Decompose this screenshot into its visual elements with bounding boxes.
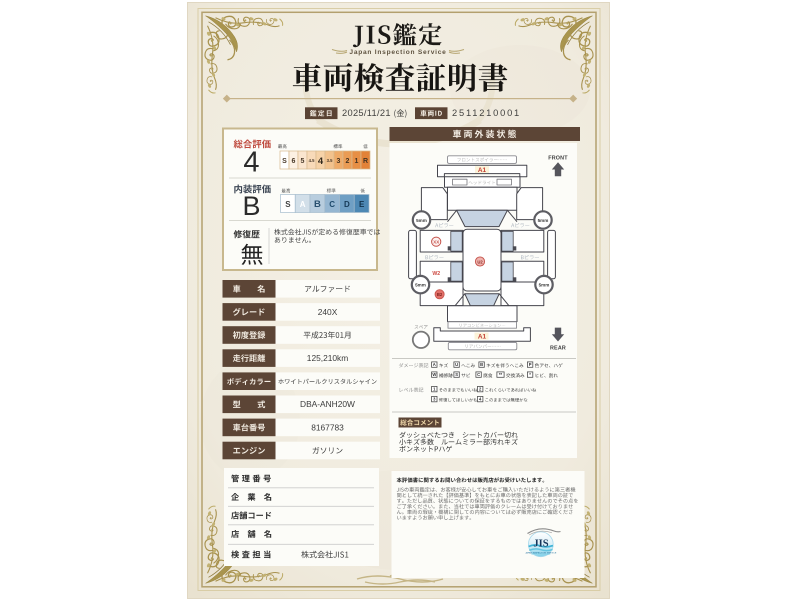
svg-text:R: R [363, 158, 368, 165]
svg-text:B2: B2 [437, 292, 443, 297]
svg-text:4.5: 4.5 [309, 158, 315, 163]
svg-text:C: C [477, 372, 480, 377]
svg-text:A: A [300, 200, 306, 209]
svg-text:REAR: REAR [550, 345, 566, 351]
svg-text:S: S [285, 200, 291, 209]
svg-text:240X: 240X [318, 307, 338, 317]
svg-text:6: 6 [292, 158, 296, 165]
svg-text:B: B [480, 362, 483, 367]
svg-text:E: E [359, 200, 365, 209]
svg-text:8167783: 8167783 [311, 422, 344, 432]
svg-text:2025/11/21: 2025/11/21 [342, 108, 391, 118]
svg-text:5mm: 5mm [539, 282, 550, 287]
svg-text:C: C [329, 200, 335, 209]
svg-text:5mm: 5mm [415, 282, 426, 287]
svg-text:3.5: 3.5 [327, 158, 333, 163]
svg-text:5mm: 5mm [416, 218, 427, 223]
svg-text:4: 4 [318, 156, 324, 167]
svg-text:2511210001: 2511210001 [452, 108, 521, 118]
svg-text:P: P [529, 362, 532, 367]
svg-text:1: 1 [355, 158, 359, 165]
svg-text:XX: XX [433, 239, 439, 244]
svg-text:FRONT: FRONT [548, 156, 568, 162]
svg-text:125,210km: 125,210km [307, 353, 348, 363]
svg-text:5mm: 5mm [538, 218, 549, 223]
svg-text:DBA-ANH20W: DBA-ANH20W [300, 399, 355, 409]
svg-text:Japan Inspection Service: Japan Inspection Service [349, 49, 446, 56]
svg-text:3: 3 [337, 158, 341, 165]
svg-text:**: ** [499, 372, 503, 377]
svg-text:S: S [455, 372, 458, 377]
svg-text:U: U [455, 362, 458, 367]
svg-text:2: 2 [346, 158, 350, 165]
svg-text:A: A [433, 362, 436, 367]
svg-text:S: S [282, 158, 287, 165]
svg-text:D: D [344, 200, 350, 209]
svg-text:JIS: JIS [533, 539, 548, 550]
svg-text:4: 4 [243, 147, 259, 179]
svg-text:5: 5 [301, 158, 305, 165]
svg-text:W: W [432, 372, 436, 377]
svg-text:JAPAN INSPECTION SERVICE: JAPAN INSPECTION SERVICE [525, 552, 557, 555]
svg-text:B: B [242, 191, 260, 221]
svg-text:B: B [314, 199, 321, 210]
svg-text:U2: U2 [477, 259, 483, 264]
svg-text:A1: A1 [478, 334, 487, 341]
svg-text:W2: W2 [432, 271, 440, 277]
svg-text:A1: A1 [478, 167, 487, 174]
